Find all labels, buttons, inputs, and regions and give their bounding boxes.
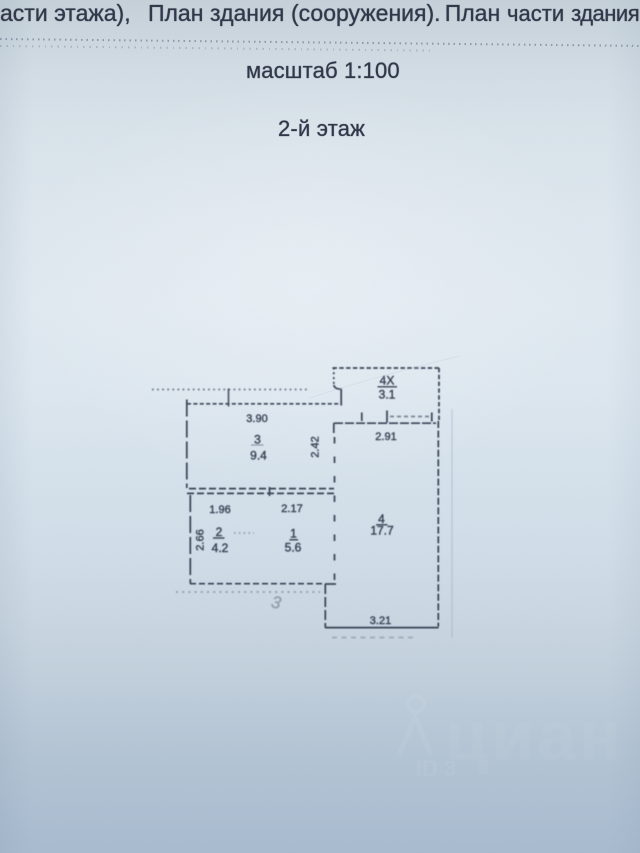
svg-text:циан: циан <box>445 697 624 775</box>
svg-text:ID 3: ID 3 <box>416 756 456 781</box>
